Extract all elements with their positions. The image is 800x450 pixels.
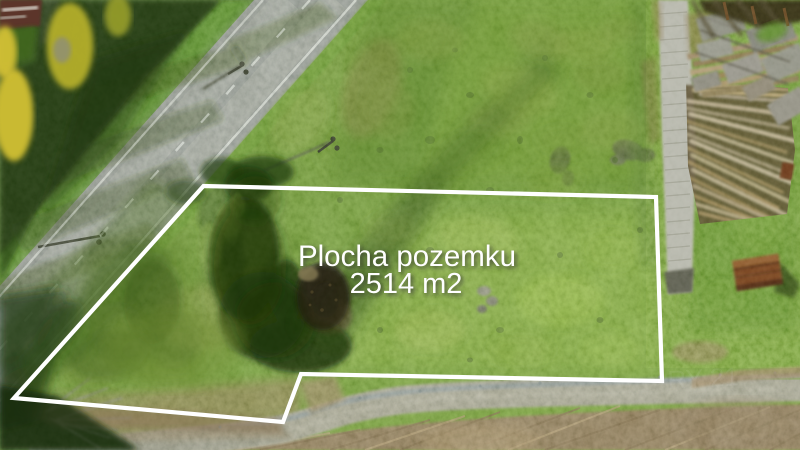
svg-text:2514 m2: 2514 m2 (350, 268, 463, 300)
svg-text:RY 21: RY 21 (667, 361, 740, 395)
